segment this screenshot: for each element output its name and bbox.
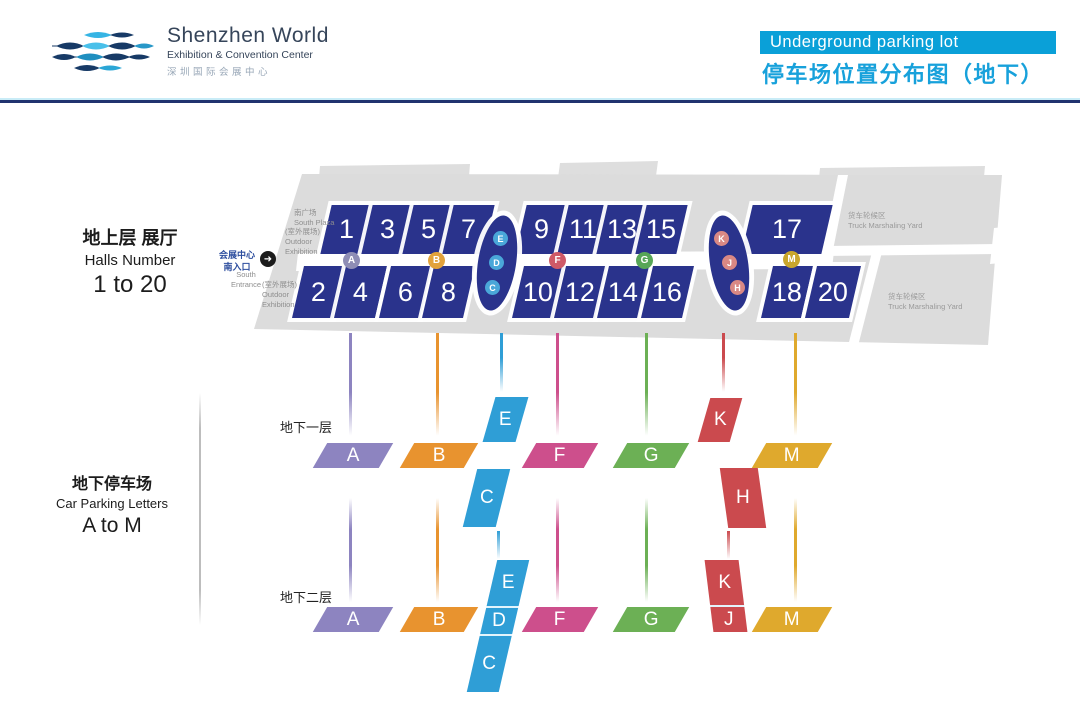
connector-k-1 <box>722 333 725 395</box>
south-entrance-label: South Entrance <box>226 270 266 290</box>
connector-e-1 <box>500 333 503 395</box>
outdoor-exhibition-label-bottom: (室外展场) Outdoor Exhibition <box>262 280 297 309</box>
mini-hall-k: K <box>714 231 729 246</box>
connector-k-2 <box>727 531 730 559</box>
connector-a-1 <box>349 333 352 441</box>
connector-g-1 <box>645 333 648 441</box>
connector-f-1 <box>556 333 559 441</box>
connector-m-1 <box>794 333 797 441</box>
outdoor-exhibition-label-top: (室外展场) Outdoor Exhibition <box>285 227 320 256</box>
connector-e-2 <box>497 531 500 559</box>
parking-b2-k: K <box>705 560 745 605</box>
truck-yard-label-2: 货车轮候区 Truck Marshaling Yard <box>888 292 962 312</box>
badge-f: F <box>549 252 566 269</box>
entrance-arrow-icon: ➜ <box>260 251 276 267</box>
badge-m: M <box>783 251 800 268</box>
level-b1-label: 地下一层 <box>280 417 332 436</box>
truck-yard-label-1: 货车轮候区 Truck Marshaling Yard <box>848 211 922 231</box>
mini-hall-c: C <box>485 280 500 295</box>
connector-g-2 <box>645 498 648 602</box>
connector-f-2 <box>556 498 559 602</box>
parking-b2-j: J <box>710 607 747 632</box>
mini-hall-d: D <box>489 255 504 270</box>
connector-a-2 <box>349 498 352 602</box>
mini-hall-h: H <box>730 280 745 295</box>
level-b2-label: 地下二层 <box>280 587 332 606</box>
connector-m-2 <box>794 498 797 602</box>
connector-b-2 <box>436 498 439 602</box>
west-edge-line <box>199 393 201 625</box>
mini-hall-e: E <box>493 231 508 246</box>
badge-a: A <box>343 252 360 269</box>
connector-b-1 <box>436 333 439 441</box>
mini-hall-j: J <box>722 255 737 270</box>
south-plaza-label: 南广场 South Plaza <box>294 208 334 228</box>
badge-g: G <box>636 252 653 269</box>
badge-b: B <box>428 252 445 269</box>
parking-b2-d: D <box>480 608 518 634</box>
hall-17: 17 <box>741 205 832 254</box>
